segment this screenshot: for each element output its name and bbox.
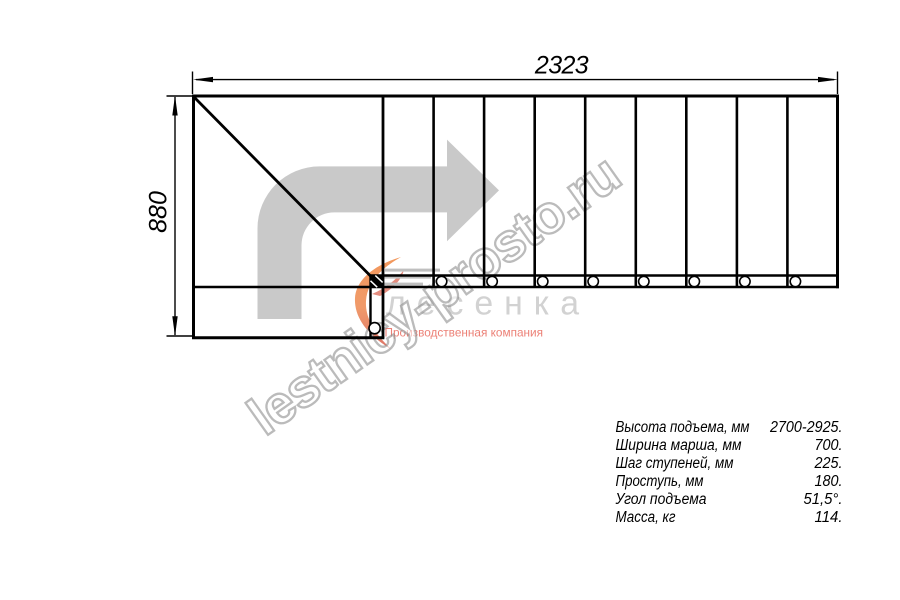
svg-text:225.: 225. bbox=[814, 455, 843, 472]
svg-text:Высота подъема, мм: Высота подъема, мм bbox=[616, 419, 750, 436]
svg-text:Проступь, мм: Проступь, мм bbox=[616, 473, 704, 490]
svg-text:2323: 2323 bbox=[534, 52, 589, 80]
svg-text:Ширина марша, мм: Ширина марша, мм bbox=[616, 437, 742, 454]
svg-text:Угол подъема: Угол подъема bbox=[615, 491, 707, 508]
svg-text:180.: 180. bbox=[815, 473, 843, 490]
svg-text:Масса, кг: Масса, кг bbox=[616, 509, 676, 526]
svg-text:700.: 700. bbox=[815, 437, 843, 454]
svg-text:2700-2925.: 2700-2925. bbox=[769, 419, 842, 436]
svg-text:880: 880 bbox=[145, 191, 173, 233]
svg-text:51,5°.: 51,5°. bbox=[804, 491, 843, 508]
svg-text:Шаг ступеней, мм: Шаг ступеней, мм bbox=[616, 455, 734, 472]
svg-text:114.: 114. bbox=[815, 509, 843, 526]
